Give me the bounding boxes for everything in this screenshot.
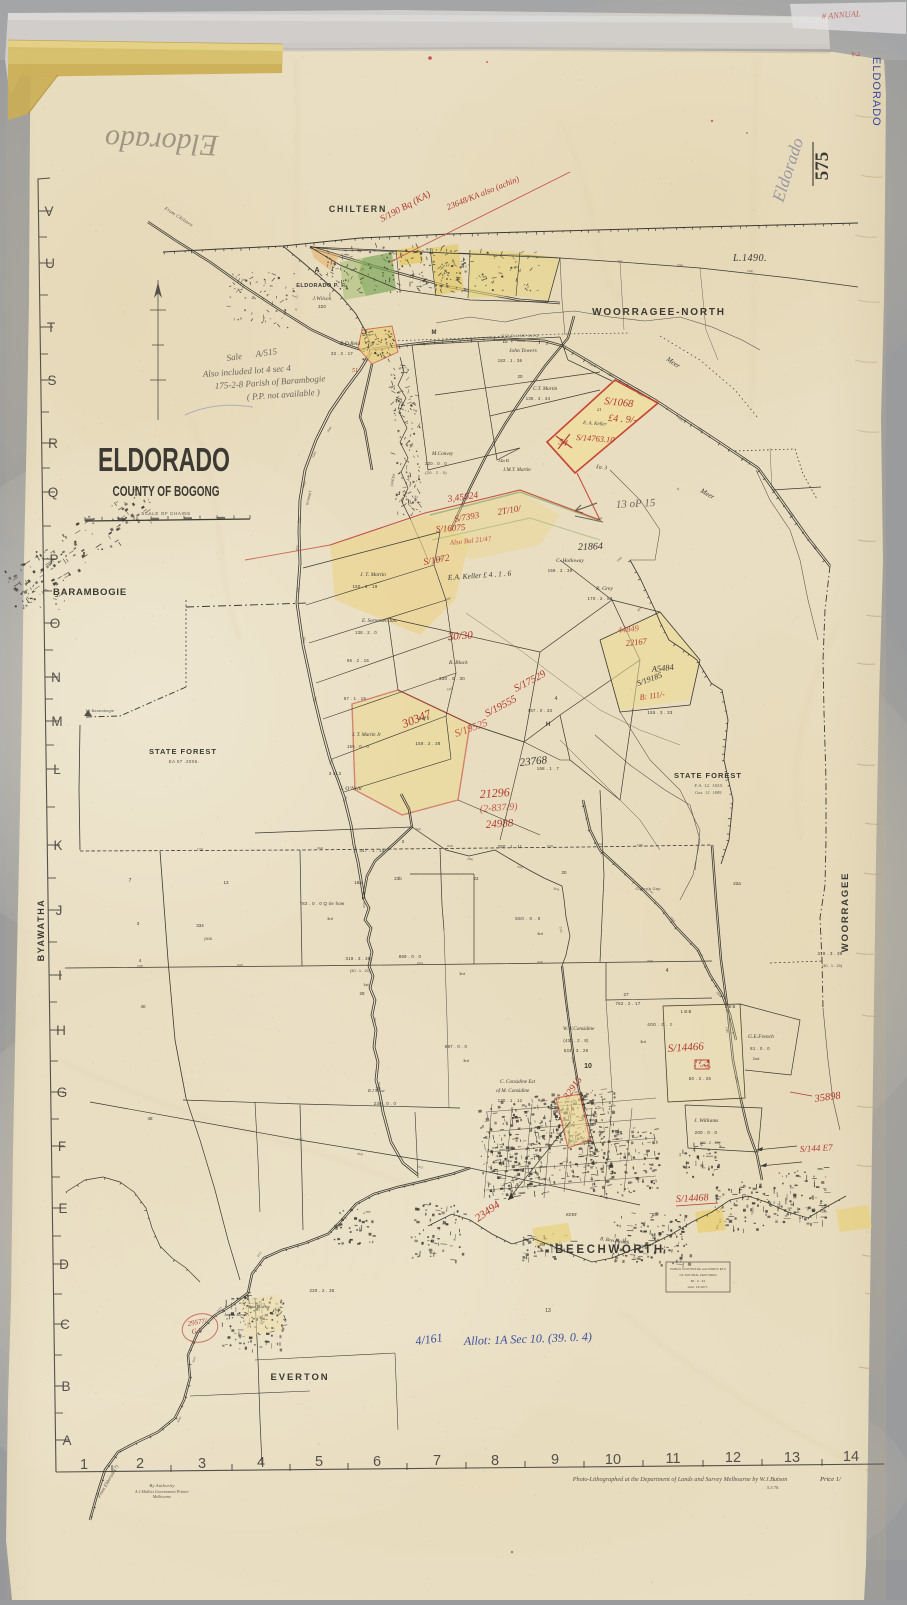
svg-text:(433 . 2 . 8): (433 . 2 . 8) — [563, 1038, 589, 1043]
svg-text:80 . 0 . 32: 80 . 0 . 32 — [691, 1279, 706, 1283]
svg-text:22a: 22a — [733, 881, 741, 886]
svg-text:STATE FOREST: STATE FOREST — [674, 771, 742, 780]
svg-text:J. T. Martin Jr: J. T. Martin Jr — [352, 733, 381, 738]
svg-text:1760: 1760 — [197, 847, 204, 851]
svg-text:51: 51 — [352, 368, 358, 374]
svg-text:7: 7 — [433, 1453, 441, 1469]
svg-text:3rd: 3rd — [327, 916, 333, 921]
svg-text:C.T. Martin: C.T. Martin — [533, 386, 558, 392]
svg-text:COUNTY OF BOGONG: COUNTY OF BOGONG — [113, 483, 220, 500]
svg-text:BARAMBOGIE: BARAMBOGIE — [53, 587, 127, 598]
svg-text:890: 890 — [373, 1017, 377, 1022]
svg-text:1st: 1st — [363, 982, 369, 987]
svg-text:158 . 2 . 38: 158 . 2 . 38 — [415, 741, 440, 746]
svg-text:GAZ. 18.1877.: GAZ. 18.1877. — [688, 1285, 709, 1289]
svg-text:John Towers: John Towers — [509, 348, 537, 354]
svg-text:7: 7 — [129, 878, 132, 884]
svg-text:81 . 0 . 0: 81 . 0 . 0 — [750, 1046, 770, 1051]
svg-text:CHILTERN: CHILTERN — [329, 204, 387, 214]
svg-text:155 . 3 . 33: 155 . 3 . 33 — [647, 710, 672, 715]
svg-text:2640: 2640 — [647, 959, 654, 963]
svg-text:87 . 1 . 19: 87 . 1 . 19 — [344, 696, 366, 701]
svg-text:3rd: 3rd — [459, 971, 465, 976]
svg-text:15: 15 — [502, 339, 508, 344]
svg-text:J.Wilson: J.Wilson — [313, 297, 332, 302]
svg-text:(30 . 1 . 20): (30 . 1 . 20) — [822, 963, 843, 968]
svg-text:2nd: 2nd — [753, 1056, 760, 1061]
svg-text:24988: 24988 — [485, 817, 514, 831]
svg-text:WOORRAGEE: WOORRAGEE — [840, 872, 851, 953]
svg-text:E. Sorrensen Jun.: E. Sorrensen Jun. — [361, 619, 397, 624]
svg-text:3340: 3340 — [547, 844, 554, 848]
svg-text:H: H — [546, 722, 550, 728]
svg-text:GOLD LINE INTO: GOLD LINE INTO — [501, 333, 539, 338]
svg-text:21296: 21296 — [479, 785, 510, 801]
svg-text:Photo-Lithographed at the Depa: Photo-Lithographed at the Department of … — [572, 1476, 788, 1483]
svg-text:869 . 0 . 0: 869 . 0 . 0 — [399, 954, 422, 959]
svg-text:14: 14 — [843, 1449, 859, 1465]
svg-text:3rd: 3rd — [640, 1039, 646, 1044]
svg-text:347 . 1 . 14: 347 . 1 . 14 — [359, 848, 384, 853]
svg-text:J. O’Neill: J. O’Neill — [340, 786, 362, 792]
svg-text:ELDORADO: ELDORADO — [98, 441, 230, 478]
svg-text:14a B.: 14a B. — [498, 458, 510, 463]
svg-text:887 . 0 . 0: 887 . 0 . 0 — [445, 1044, 468, 1049]
svg-text:PUBLIC FOOTPATHS and PARKS ETC: PUBLIC FOOTPATHS and PARKS ETC — [670, 1267, 727, 1271]
svg-text:762 . 2 . 17: 762 . 2 . 17 — [615, 1001, 640, 1006]
svg-text:3340: 3340 — [447, 844, 454, 848]
svg-text:23b: 23b — [394, 876, 402, 881]
svg-text:158 . 3 . 38: 158 . 3 . 38 — [548, 568, 573, 573]
svg-text:BYAWATHA: BYAWATHA — [36, 899, 46, 962]
svg-text:9: 9 — [551, 1452, 559, 1468]
svg-text:21864: 21864 — [578, 541, 603, 553]
svg-text:EA 07 .2006.: EA 07 .2006. — [169, 759, 200, 764]
svg-text:S/144 E7: S/144 E7 — [800, 1142, 834, 1154]
svg-text:20: 20 — [517, 374, 523, 379]
svg-text:3rd: 3rd — [463, 1058, 469, 1063]
svg-text:OF NATURAL FEATURES: OF NATURAL FEATURES — [679, 1273, 716, 1277]
svg-text:2: 2 — [136, 1456, 144, 1472]
svg-text:M: M — [432, 330, 437, 336]
svg-text:4: 4 — [555, 696, 558, 702]
svg-text:M.Convey: M.Convey — [431, 451, 454, 457]
svg-text:13: 13 — [545, 1308, 551, 1314]
svg-text:13 oP 15: 13 oP 15 — [616, 497, 657, 511]
svg-text:4: 4 — [257, 1455, 265, 1471]
svg-text:Price 1/: Price 1/ — [819, 1476, 842, 1483]
svg-text:SCALE OF CHAINS: SCALE OF CHAINS — [141, 511, 191, 516]
svg-text:1980: 1980 — [137, 964, 144, 968]
svg-text:2640: 2640 — [296, 586, 301, 593]
svg-text:182 . 1 . 36: 182 . 1 . 36 — [498, 358, 523, 363]
svg-text:Mt Barambogie: Mt Barambogie — [86, 709, 114, 713]
svg-text:135 . 3 . 34: 135 . 3 . 34 — [526, 396, 551, 401]
svg-text:533 . 3 . 28: 533 . 3 . 28 — [564, 1048, 589, 1053]
svg-text:Gaz. 12. 1889.: Gaz. 12. 1889. — [695, 790, 723, 795]
svg-text:C. Holloway: C. Holloway — [556, 558, 584, 564]
svg-text:£4 . 9/-: £4 . 9/- — [608, 413, 637, 426]
svg-text:ELDORADO: ELDORADO — [870, 57, 882, 127]
svg-text:KEBY: KEBY — [565, 1212, 577, 1217]
svg-text:(20 . 2 . 0): (20 . 2 . 0) — [425, 470, 447, 475]
svg-text:J. Williams: J. Williams — [694, 1118, 718, 1124]
svg-text:3340: 3340 — [317, 846, 324, 850]
svg-text:4 of 3: 4 of 3 — [418, 717, 430, 722]
svg-text:6: 6 — [373, 1454, 381, 1470]
svg-text:S/14466: S/14466 — [667, 1040, 704, 1055]
svg-text:155 . 0 . 0: 155 . 0 . 0 — [347, 744, 369, 749]
svg-text:138 . 2 . 0: 138 . 2 . 0 — [355, 630, 377, 635]
svg-text:2212: 2212 — [417, 961, 424, 965]
svg-text:R. Black: R. Black — [448, 660, 468, 666]
svg-text:1 st B: 1 st B — [725, 1004, 736, 1009]
svg-text:(506: (506 — [204, 936, 213, 941]
svg-text:4: 4 — [666, 968, 669, 974]
svg-text:168 . 1 . 7: 168 . 1 . 7 — [537, 766, 560, 771]
svg-text:319 . 3 . 38: 319 . 3 . 38 — [345, 956, 370, 961]
svg-text:230 . 0 . 0: 230 . 0 . 0 — [374, 1101, 397, 1106]
svg-text:1980: 1980 — [677, 263, 684, 267]
svg-text:1980: 1980 — [747, 269, 754, 273]
svg-text:Sale: Sale — [226, 351, 243, 363]
svg-text:1 st B: 1 st B — [681, 1009, 692, 1014]
svg-text:319 . 3 . 38: 319 . 3 . 38 — [817, 951, 842, 956]
svg-text:1760: 1760 — [467, 337, 474, 341]
svg-text:33 . 2 . 17: 33 . 2 . 17 — [331, 351, 353, 356]
svg-text:22: 22 — [473, 876, 479, 881]
svg-text:334: 334 — [196, 923, 204, 928]
svg-text:R. Grey: R. Grey — [595, 586, 613, 592]
svg-text:467 . 0 . 33: 467 . 0 . 33 — [528, 708, 553, 713]
svg-text:3rd: 3rd — [537, 931, 543, 936]
svg-text:86 . 2 . 16: 86 . 2 . 16 — [347, 658, 369, 663]
svg-text:Anna Rowley: Anna Rowley — [245, 1304, 270, 1309]
svg-text:12: 12 — [725, 1450, 741, 1466]
svg-text:C. Considine Est: C. Considine Est — [500, 1079, 536, 1085]
svg-text:By Authority: By Authority — [149, 1483, 174, 1488]
svg-text:3: 3 — [198, 1456, 206, 1472]
svg-text:STATE FOREST: STATE FOREST — [149, 747, 217, 756]
svg-text:11: 11 — [665, 1451, 680, 1467]
svg-text:1: 1 — [80, 1457, 88, 1473]
svg-text:280 . 1 . 11: 280 . 1 . 11 — [498, 844, 523, 849]
svg-text:48: 48 — [147, 1116, 153, 1121]
svg-text:10: 10 — [584, 1063, 592, 1070]
svg-text:3 of 3: 3 of 3 — [329, 771, 342, 776]
svg-text:1760: 1760 — [637, 843, 644, 847]
svg-text:320: 320 — [318, 304, 326, 309]
svg-text:782 . 0 . 0 Q tie how: 782 . 0 . 0 Q tie how — [300, 901, 345, 906]
svg-text:W.W.Considine: W.W.Considine — [563, 1026, 595, 1032]
svg-text:S/14468: S/14468 — [676, 1192, 709, 1205]
svg-text:of M. Considine: of M. Considine — [496, 1087, 530, 1094]
svg-text:550 . 0 . 0: 550 . 0 . 0 — [515, 916, 541, 921]
svg-text:575: 575 — [812, 152, 833, 181]
svg-text:J.M.T. Martin: J.M.T. Martin — [503, 468, 531, 473]
svg-text:150 . 3 . 19: 150 . 3 . 19 — [352, 584, 377, 589]
svg-text:1480: 1480 — [369, 956, 374, 963]
svg-text:2860: 2860 — [517, 339, 524, 343]
svg-text:230 . 2 . 35: 230 . 2 . 35 — [309, 1288, 334, 1293]
svg-text:G.E.French: G.E.French — [748, 1034, 774, 1040]
svg-text:27: 27 — [623, 992, 629, 997]
svg-text:J. T. Martin: J. T. Martin — [360, 572, 386, 578]
svg-text:WOORRAGEE-NORTH: WOORRAGEE-NORTH — [592, 307, 726, 318]
svg-text:2020: 2020 — [362, 901, 367, 908]
svg-text:18a: 18a — [354, 880, 362, 885]
svg-text:50 . 3 . 26: 50 . 3 . 26 — [689, 1076, 712, 1081]
svg-text:20: 20 — [561, 870, 567, 875]
svg-text:5: 5 — [315, 1454, 323, 1470]
svg-text:Melbourne: Melbourne — [152, 1494, 172, 1499]
svg-text:3440: 3440 — [597, 842, 604, 847]
svg-text:(30 . 1 . 20): (30 . 1 . 20) — [350, 968, 371, 973]
svg-text:330 . 0 . 30: 330 . 0 . 30 — [439, 676, 465, 681]
svg-text:R.D.Reid: R.D.Reid — [339, 341, 360, 347]
svg-text:3440: 3440 — [537, 960, 544, 964]
svg-text:13: 13 — [223, 880, 229, 885]
svg-text:5.3.70.: 5.3.70. — [767, 1485, 779, 1490]
svg-text:R.J Snow: R.J Snow — [367, 1088, 385, 1093]
svg-text:8: 8 — [491, 1453, 499, 1469]
svg-text:1760: 1760 — [417, 342, 424, 347]
svg-text:4020: 4020 — [237, 963, 244, 967]
svg-text:40: 40 — [140, 1004, 146, 1009]
svg-text:21: 21 — [597, 407, 602, 412]
svg-text:28: 28 — [359, 991, 365, 996]
svg-text:F.A. 12. 1655.: F.A. 12. 1655. — [693, 783, 723, 788]
svg-text:Eldorado: Eldorado — [104, 123, 220, 162]
svg-text:890: 890 — [618, 259, 623, 263]
svg-text:320 . 0 . 0: 320 . 0 . 0 — [425, 461, 447, 466]
svg-text:200 . 0 . 0: 200 . 0 . 0 — [695, 1130, 718, 1135]
svg-text:L.1490.: L.1490. — [732, 253, 767, 264]
svg-text:170 . 2 . 63: 170 . 2 . 63 — [587, 596, 612, 601]
svg-text:EVERTON: EVERTON — [270, 1372, 329, 1383]
